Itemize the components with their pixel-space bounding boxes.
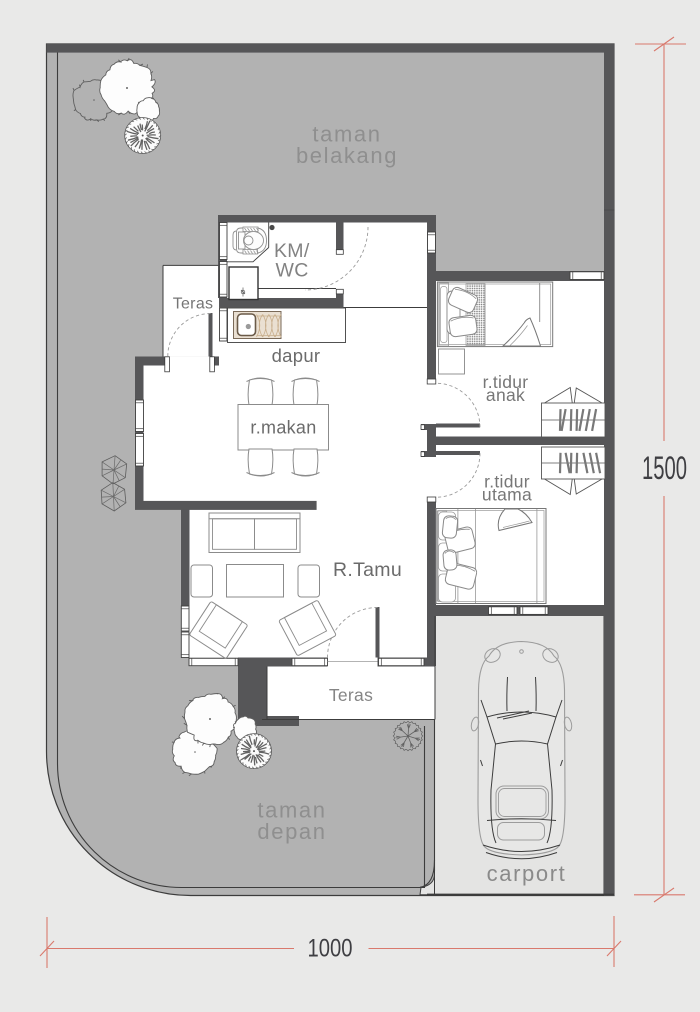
- svg-text:dapur: dapur: [272, 345, 321, 366]
- svg-text:1500: 1500: [642, 450, 687, 486]
- svg-text:carport: carport: [487, 861, 567, 886]
- svg-text:r.makan: r.makan: [250, 418, 316, 438]
- svg-text:1000: 1000: [308, 935, 353, 963]
- svg-text:utama: utama: [482, 485, 532, 505]
- svg-text:anak: anak: [486, 385, 525, 405]
- svg-text:WC: WC: [276, 260, 309, 282]
- svg-text:Teras: Teras: [173, 296, 214, 313]
- svg-text:belakang: belakang: [296, 143, 398, 168]
- svg-text:Teras: Teras: [329, 685, 373, 705]
- svg-text:depan: depan: [257, 819, 326, 844]
- svg-text:R.Tamu: R.Tamu: [333, 559, 402, 581]
